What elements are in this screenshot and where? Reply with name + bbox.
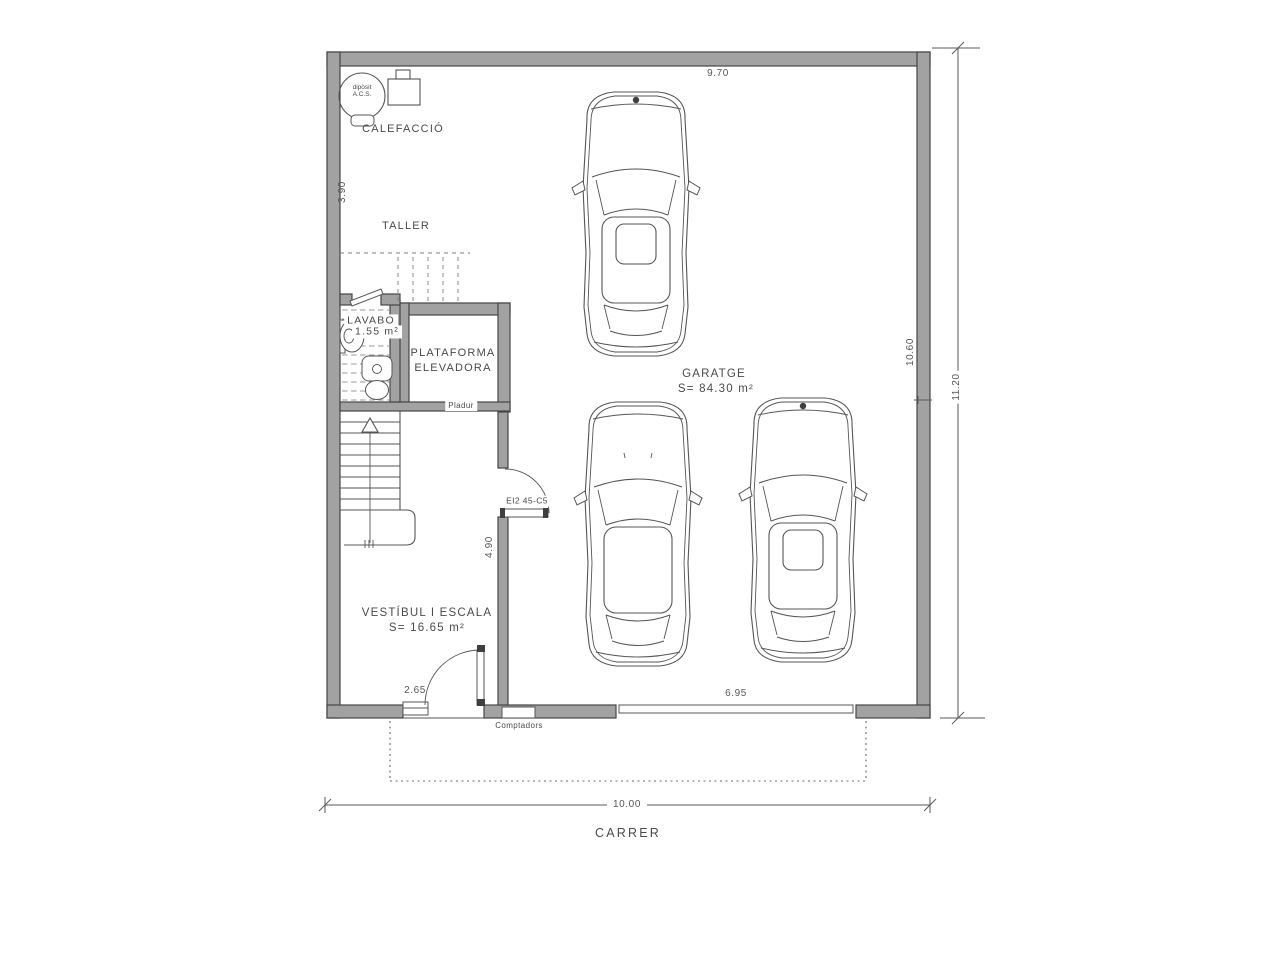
lavabo-door-jamb-left (340, 294, 352, 305)
room-label-taller: TALLER (382, 220, 430, 234)
dimension-right-total-height: 11.20 (951, 370, 964, 403)
lift-shaft-wall-right (498, 303, 510, 412)
lift-shaft-wall-top (397, 303, 510, 315)
fire-door-arc (505, 469, 549, 513)
floor-plan-drawing (0, 0, 1280, 960)
acs-tank-label-line2: A.C.S. (353, 92, 372, 99)
street-label: CARRER (595, 826, 661, 842)
vestibule-partition-lower (498, 517, 508, 705)
entrance-door-arc (425, 650, 480, 705)
room-label-plataforma-line1: PLATAFORMA (411, 347, 496, 361)
car-icon (574, 402, 702, 666)
annotation-pladur: Pladur (445, 401, 477, 411)
fire-door-leaf (502, 509, 548, 517)
room-label-garatge: GARATGE (682, 367, 746, 381)
heating-fixtures (339, 70, 420, 126)
dimension-garage-door-width: 6.95 (725, 688, 747, 701)
garage-door (619, 705, 853, 713)
acs-tank-label: dipòsit A.C.S. (353, 85, 372, 99)
entrance-door-leaf (477, 650, 484, 705)
entrance-sill (403, 702, 428, 715)
meters-cabinet (502, 707, 535, 718)
stairs-up-arrow (362, 418, 378, 432)
annotation-comptadors: Comptadors (495, 721, 543, 731)
dimension-entrance-width: 2.65 (404, 685, 426, 698)
car-icon (739, 398, 867, 662)
dimension-left-height: 3.90 (337, 181, 350, 203)
dimension-right-inner-height: 10.60 (905, 338, 918, 366)
vestibule-partition-upper (498, 412, 508, 468)
dimension-vestibule-depth: 4.90 (484, 536, 497, 558)
lavabo-door-jamb-right (381, 294, 400, 305)
toilet-icon (362, 356, 392, 381)
room-label-calefaccio: CALEFACCIÓ (362, 123, 444, 137)
dimension-total-width: 10.00 (607, 799, 647, 812)
car-icon (572, 92, 700, 356)
dimension-lines (319, 42, 985, 813)
floor-plan: CALEFACCIÓ TALLER LAVABO 1.55 m² PLATAFO… (0, 0, 1280, 960)
room-area-lavabo: 1.55 m² (352, 325, 402, 338)
pladur-partition (340, 402, 510, 411)
lavabo-door-leaf (350, 289, 383, 306)
boiler-icon (388, 79, 420, 105)
annotation-fire-door: EI2 45-C5 (503, 496, 551, 507)
room-label-vestibul: VESTÍBUL I ESCALA (362, 606, 493, 620)
room-label-plataforma-line2: ELEVADORA (414, 362, 491, 376)
taller-projection-dashes (340, 253, 470, 302)
room-area-garatge: S= 84.30 m² (678, 382, 754, 396)
stairs-icon (340, 411, 415, 548)
dimension-top-width: 9.70 (707, 68, 729, 81)
room-area-vestibul: S= 16.65 m² (389, 621, 465, 635)
